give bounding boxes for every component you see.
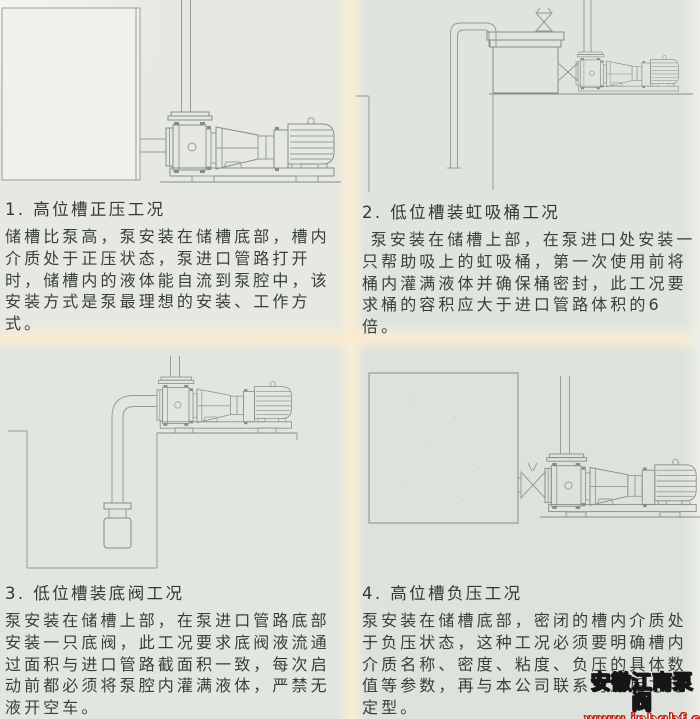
diagram-low-tank-foot-valve <box>0 348 350 576</box>
discharge-pipe <box>584 0 591 52</box>
panel-3-heading: 3. 低位槽装底阀工况 <box>5 583 343 605</box>
panel-2-caption: 2. 低位槽装虹吸桶工况 泵安装在储槽上部，在泵进口处安装一只帮助吸上的虹吸桶，… <box>362 202 698 338</box>
diagram-low-tank-siphon-barrel <box>350 0 700 200</box>
panel-2-body: 泵安装在储槽上部，在泵进口处安装一只帮助吸上的虹吸桶，第一次使用前将桶内灌满液体… <box>362 229 698 338</box>
siphon-suction-pipe <box>447 23 496 168</box>
panel-4-heading: 4. 高位槽负压工况 <box>362 583 698 605</box>
baseplate-pads <box>175 428 276 433</box>
pump-icon <box>166 112 334 176</box>
low-tank-walls <box>356 95 493 192</box>
diagram-high-tank-negative-pressure <box>350 368 700 528</box>
panel-3-body: 泵安装在储槽上部，在泵进口管路底部安装一只底阀，此工况要求底阀液流通过面积与进口… <box>5 610 343 719</box>
inlet-valve-icon <box>521 463 545 498</box>
watermark-url: www.jnhgbf.com <box>584 713 700 719</box>
catalog-page: 1. 高位槽正压工况 储槽比泵高，泵安装在储槽底部，槽内介质处于正压状态，泵进口… <box>0 0 700 719</box>
foot-valve-icon <box>104 503 131 548</box>
storage-tank-icon <box>2 8 140 180</box>
watermark: 安徽江南泵阀 www.jnhgbf.com <box>584 672 700 719</box>
panel-1-body: 储槽比泵高，泵安装在储槽底部，槽内介质处于正压状态，泵进口管路打开时，储槽内的液… <box>5 226 343 335</box>
pit-walls <box>8 431 297 568</box>
diagram-high-tank-positive-pressure <box>0 0 345 196</box>
baseplate-pads <box>540 512 700 517</box>
watermark-brand: 安徽江南泵阀 <box>584 672 700 712</box>
closed-tank-icon <box>369 373 518 523</box>
panel-1-heading: 1. 高位槽正压工况 <box>5 199 343 221</box>
pump-icon <box>157 377 291 428</box>
baseplate-pads <box>160 176 341 182</box>
discharge-pipe <box>561 376 570 454</box>
inlet-valve-icon <box>558 63 578 81</box>
suction-pipe <box>140 139 166 152</box>
discharge-pipe <box>182 0 191 112</box>
panel-3-caption: 3. 低位槽装底阀工况 泵安装在储槽上部，在泵进口管路底部安装一只底阀，此工况要… <box>5 583 343 719</box>
panel-2-heading: 2. 低位槽装虹吸桶工况 <box>362 202 698 224</box>
panel-1-caption: 1. 高位槽正压工况 储槽比泵高，泵安装在储槽底部，槽内介质处于正压状态，泵进口… <box>5 199 343 335</box>
discharge-pipe <box>171 356 180 377</box>
suction-pipe <box>112 396 157 504</box>
pump-icon <box>576 52 678 91</box>
pump-icon <box>545 454 696 512</box>
siphon-barrel-icon <box>487 32 564 93</box>
barrel-top-valve-icon <box>536 8 552 31</box>
